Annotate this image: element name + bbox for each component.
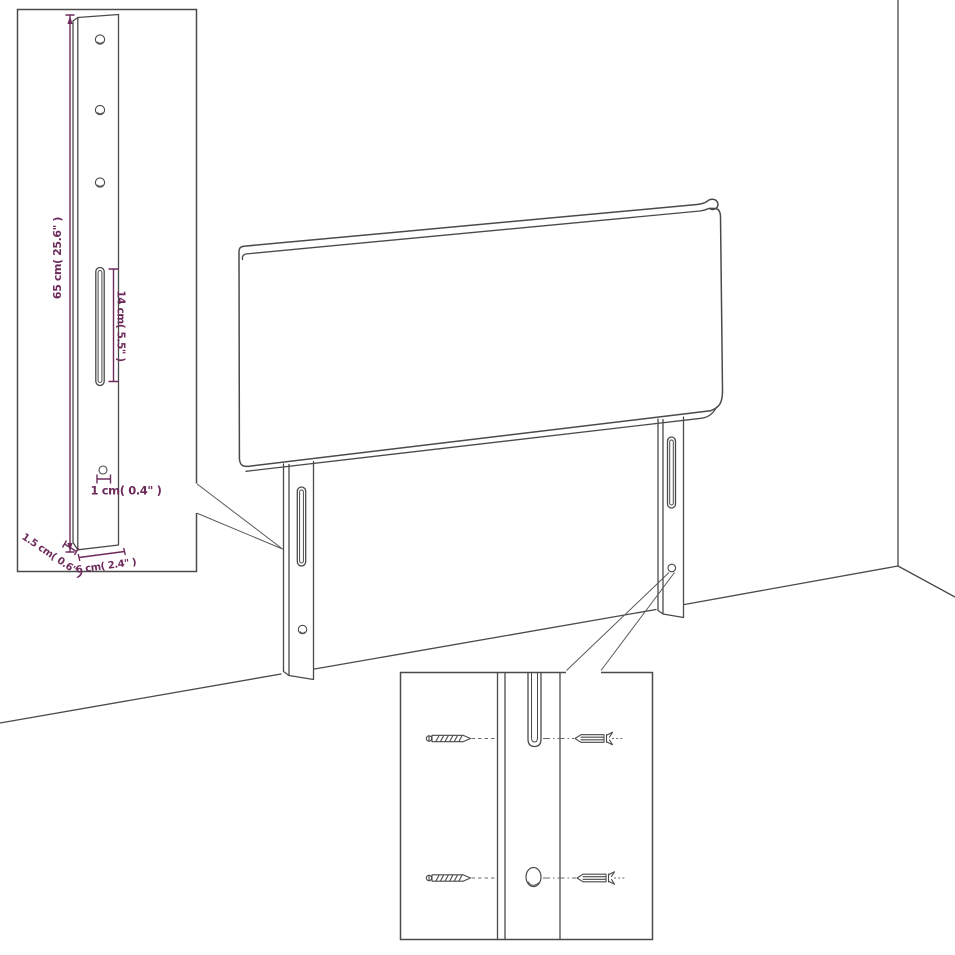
right-leg-slot-inner xyxy=(670,440,674,505)
diagram-canvas: 65 cm( 25.6" ) 14 cm( 5.5" ) 1 cm( 0.4" … xyxy=(0,0,955,955)
leg-detail-inset: 65 cm( 25.6" ) 14 cm( 5.5" ) 1 cm( 0.4" … xyxy=(17,9,197,580)
left-leg-slot-outer xyxy=(297,487,305,566)
hole-diameter-label: 1 cm( 0.4" ) xyxy=(91,484,162,498)
leader-line-inset2-b xyxy=(601,573,675,671)
leader-line-inset2-a xyxy=(567,573,670,671)
right-leg-hole xyxy=(668,564,676,572)
left-leg-hole-shade xyxy=(300,632,306,634)
headboard-panel xyxy=(239,199,723,471)
right-leg-outline xyxy=(658,417,684,618)
floor-line-left xyxy=(0,674,281,723)
leader-line-inset1-b xyxy=(197,513,283,549)
headboard-outline xyxy=(239,199,723,466)
left-leg-slot-inner xyxy=(300,490,304,563)
leader-line-inset1-a xyxy=(197,484,283,550)
leg-height-label: 65 cm( 25.6" ) xyxy=(51,217,64,299)
slot-length-label: 14 cm( 5.5" ) xyxy=(115,290,127,361)
mounting-detail-inset xyxy=(400,672,653,940)
floor-line-right xyxy=(898,566,955,597)
floor-line-middle xyxy=(315,610,657,670)
left-leg-outline xyxy=(284,462,314,680)
inset2-background xyxy=(400,672,653,940)
right-leg-slot-outer xyxy=(668,437,676,508)
product-dimension-diagram: 65 cm( 25.6" ) 14 cm( 5.5" ) 1 cm( 0.4" … xyxy=(0,0,955,955)
headboard-left-leg xyxy=(284,462,314,680)
left-leg-hole xyxy=(298,625,306,633)
callout-lines xyxy=(197,484,675,671)
headboard-right-leg xyxy=(658,417,684,618)
floor-line-at-corner xyxy=(685,566,899,605)
